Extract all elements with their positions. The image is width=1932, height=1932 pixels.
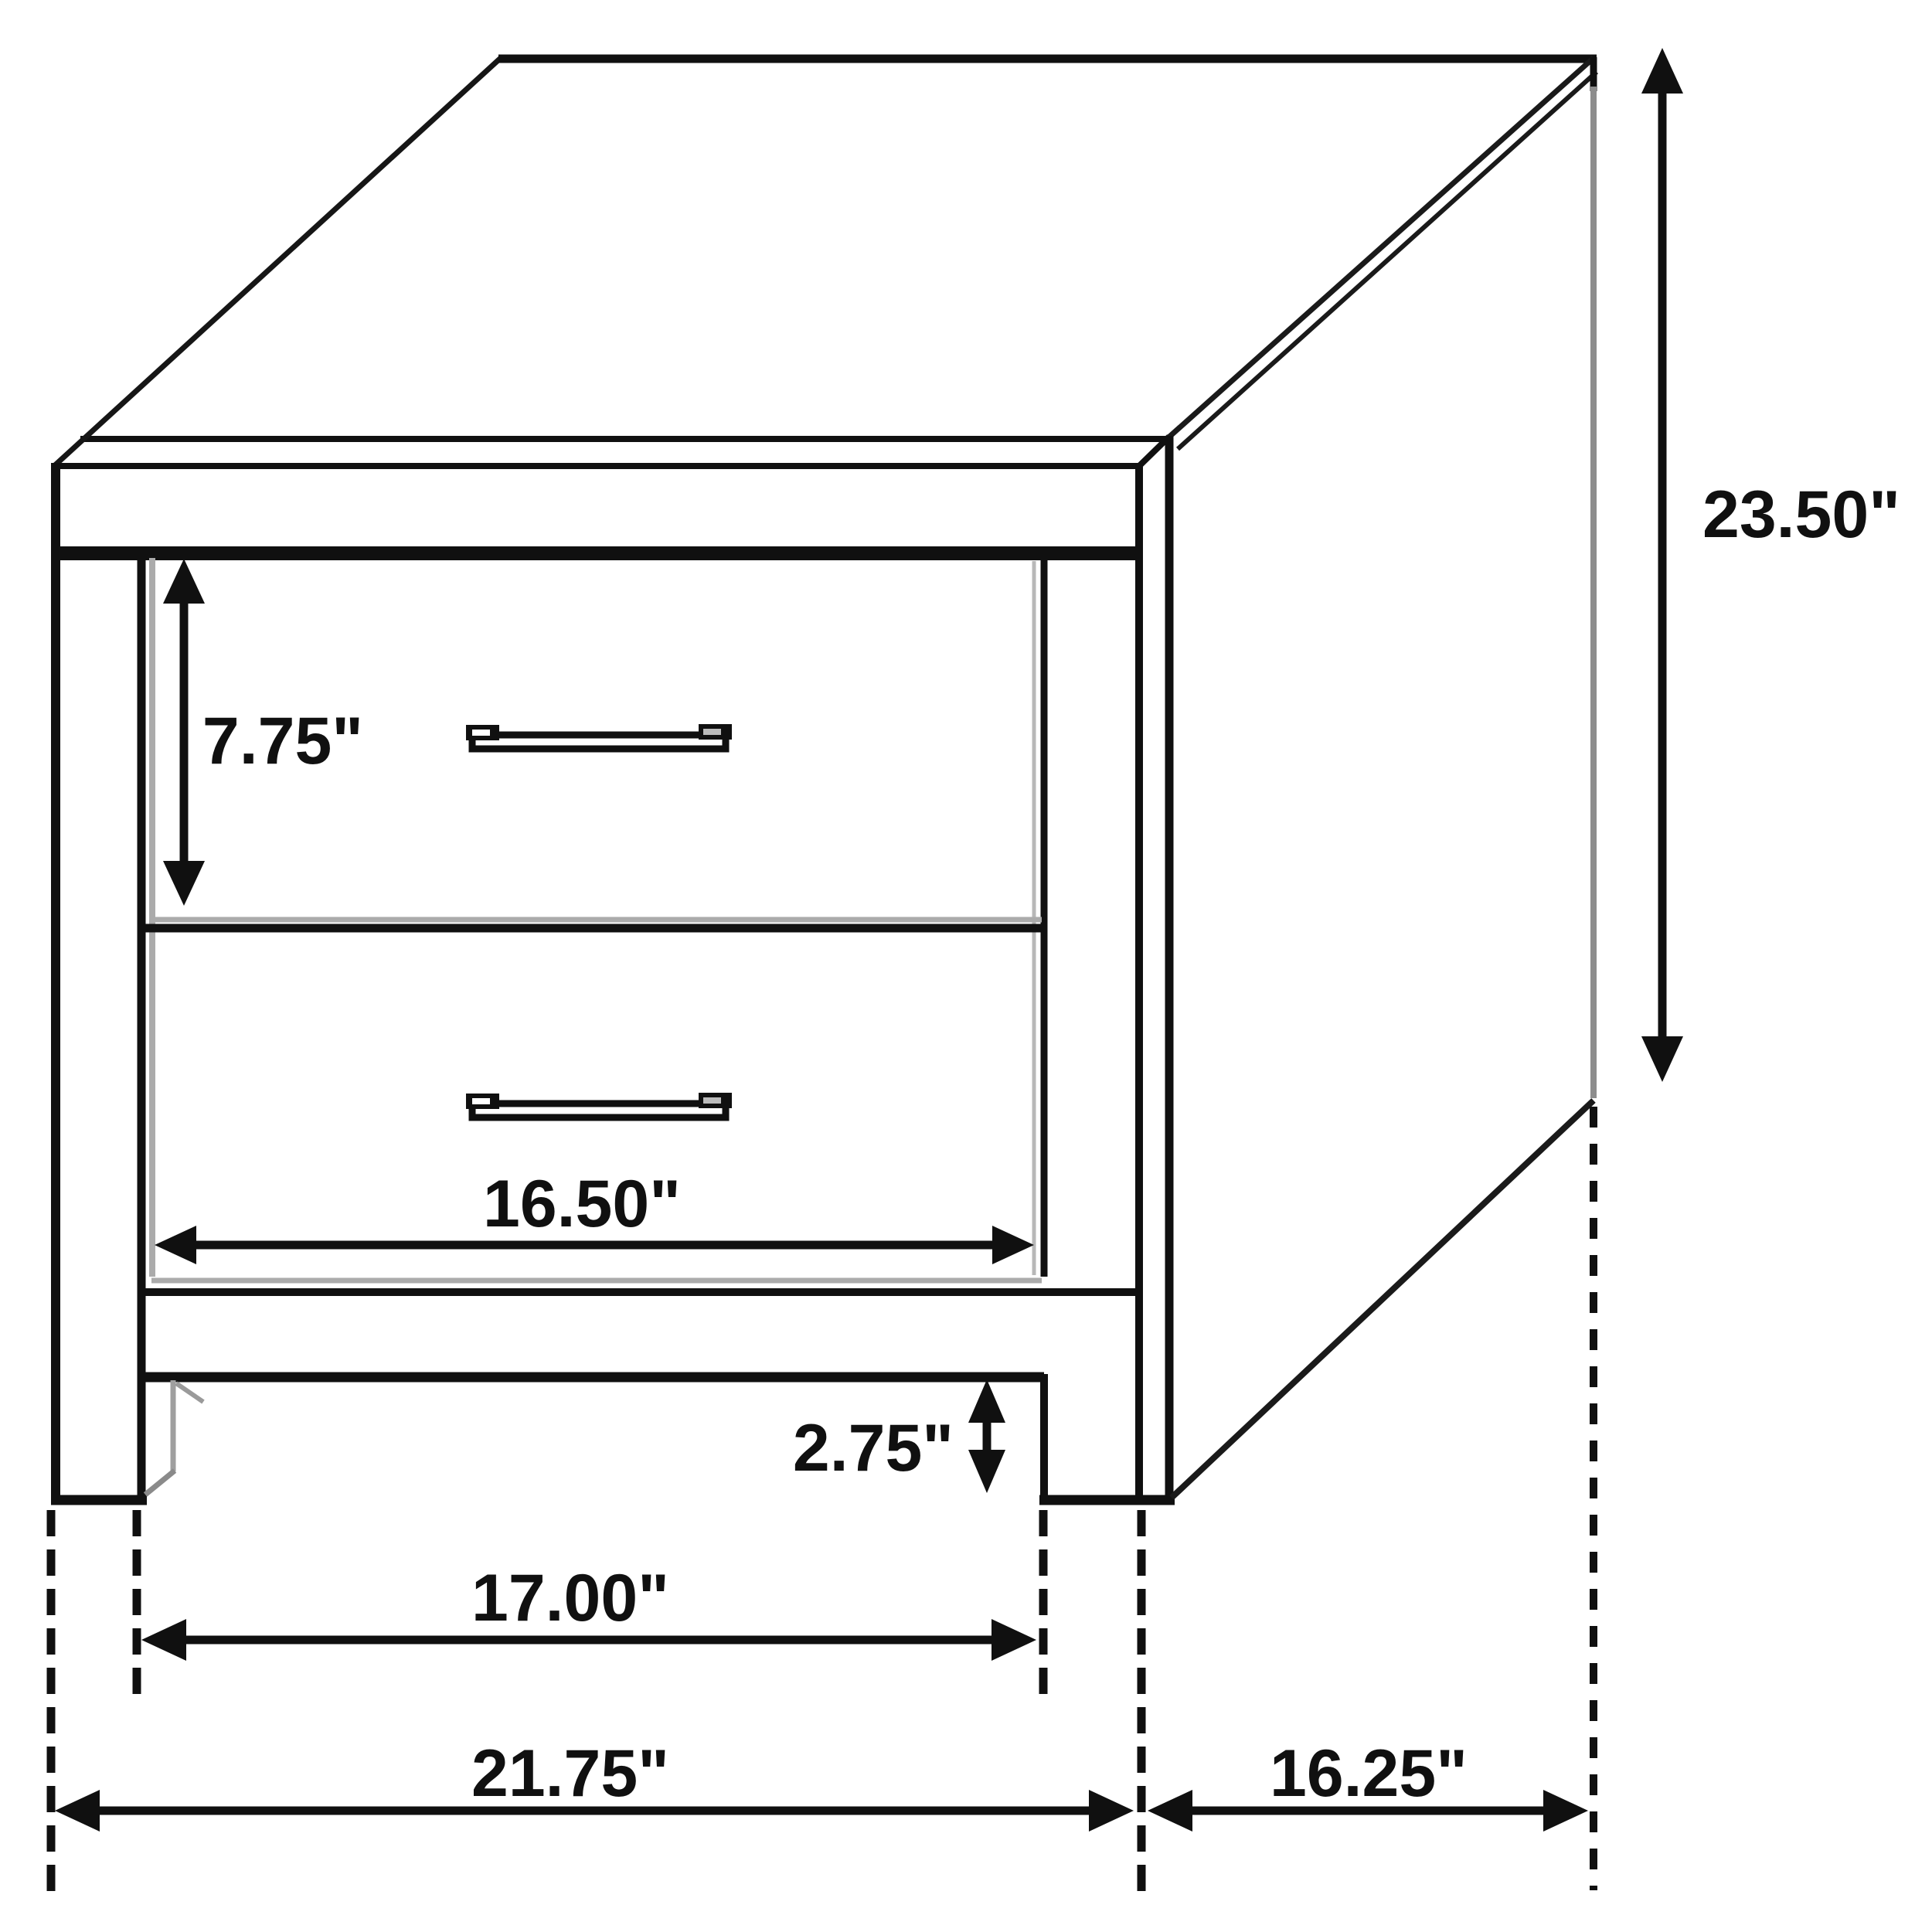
svg-text:7.75": 7.75"	[202, 704, 363, 778]
svg-text:2.75": 2.75"	[793, 1411, 954, 1485]
svg-text:16.25": 16.25"	[1270, 1736, 1468, 1811]
svg-text:16.50": 16.50"	[483, 1167, 681, 1241]
svg-text:17.00": 17.00"	[471, 1561, 669, 1635]
svg-text:21.75": 21.75"	[471, 1736, 669, 1811]
svg-text:23.50": 23.50"	[1702, 478, 1900, 552]
